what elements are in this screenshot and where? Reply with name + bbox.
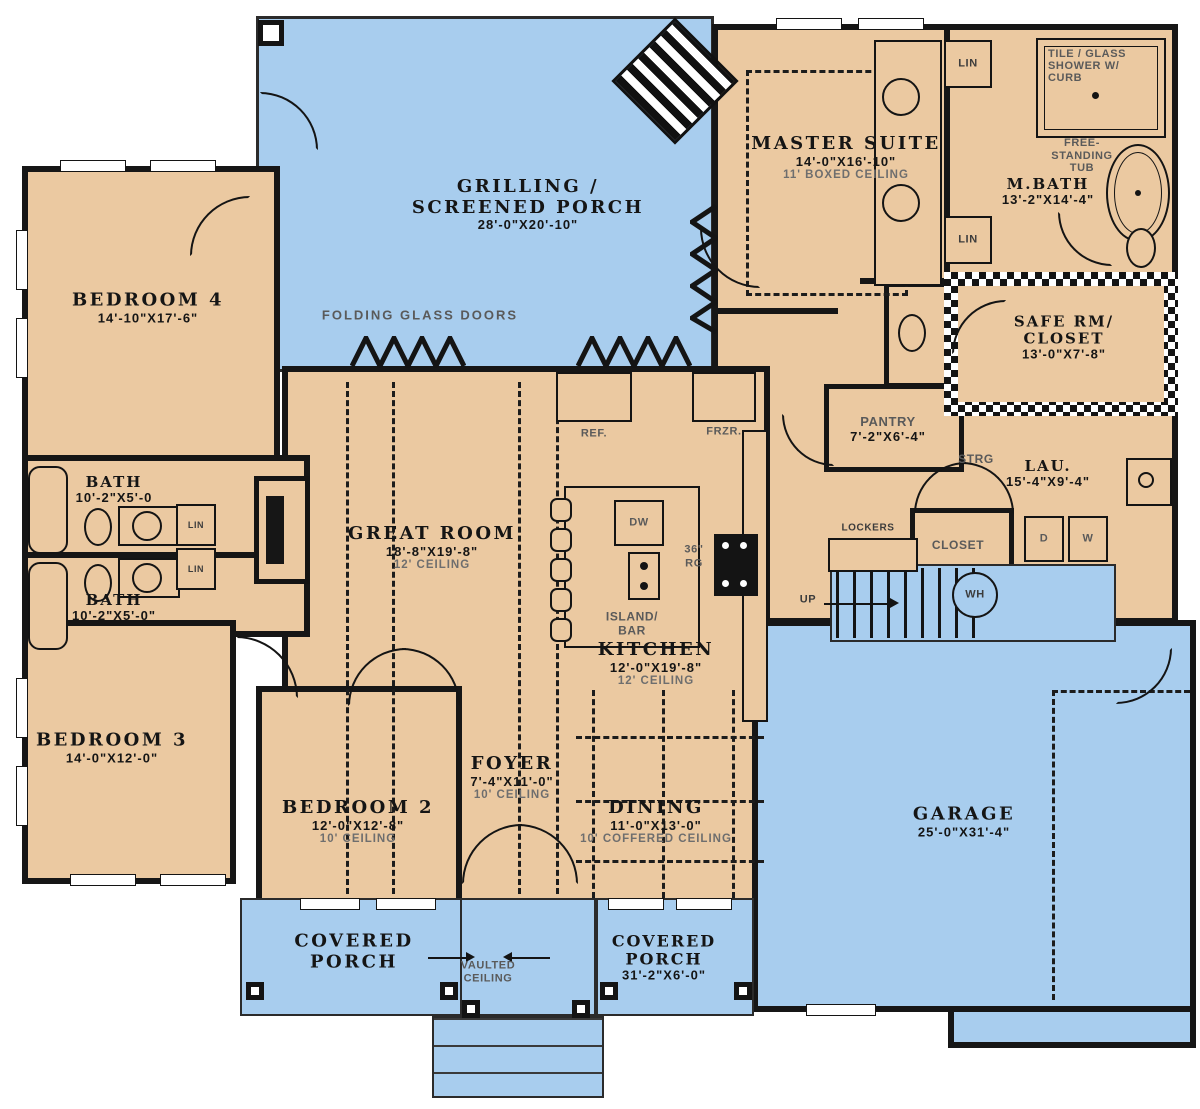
coffered-dash	[576, 860, 764, 863]
burner	[722, 542, 729, 549]
window	[858, 18, 924, 30]
stool-icon	[550, 498, 572, 522]
burner	[740, 580, 747, 587]
room-label-porch-right: COVERED PORCH 31'-2"X6'-0"	[612, 932, 716, 983]
freezer-icon	[692, 372, 756, 422]
ref-label: REF.	[581, 428, 607, 441]
garage-dashed-bay	[1052, 690, 1190, 1000]
shower-drain	[1092, 92, 1099, 99]
linen-label: LIN	[958, 58, 978, 71]
room-label-bedroom4: BEDROOM 4 14'-10"X17'-6"	[72, 290, 224, 325]
folding-door-icon	[350, 336, 466, 368]
strg-label: STRG	[958, 453, 994, 467]
up-arrow-line	[824, 603, 890, 605]
range-size-label: 36"	[684, 544, 703, 557]
island-sink-icon	[628, 552, 660, 600]
sink-icon	[132, 511, 162, 541]
bathtub-icon	[28, 562, 68, 650]
wall-segment	[712, 308, 838, 314]
toilet-icon	[84, 508, 112, 546]
porch-post	[258, 20, 284, 46]
vault-arrow-line	[512, 957, 550, 959]
room-label-foyer: FOYER 7'-4"X11'-0" 10' CEILING	[470, 754, 553, 802]
room-label-garage: GARAGE 25'-0"X31'-4"	[913, 804, 1015, 839]
sink-icon	[882, 184, 920, 222]
coffered-dash	[732, 690, 735, 898]
window	[16, 318, 28, 378]
stool-icon	[550, 588, 572, 612]
dryer-label: D	[1040, 533, 1049, 546]
room-label-kitchen: KITCHEN 12'-0"X19'-8" 12' CEILING	[598, 640, 714, 688]
stool-icon	[550, 618, 572, 642]
bathtub-icon	[28, 466, 68, 554]
window	[16, 766, 28, 826]
porch-post	[462, 1000, 480, 1018]
shower-label: TILE / GLASS SHOWER W/ CURB	[1048, 48, 1126, 84]
window	[608, 898, 664, 910]
folding-door-icon	[690, 204, 718, 334]
tub-drain	[1135, 190, 1141, 196]
washer-label: W	[1083, 533, 1094, 546]
porch-post	[600, 982, 618, 1000]
window	[16, 230, 28, 290]
porch-post	[734, 982, 752, 1000]
linen-label: LIN	[188, 564, 204, 574]
coffered-dash	[592, 690, 595, 898]
floor-plan: WH UP LIN LIN REF. FRZR.	[0, 0, 1200, 1109]
room-label-safe-room: SAFE RM/ CLOSET 13'-0"X7'-8"	[1014, 314, 1114, 363]
window	[300, 898, 360, 910]
window	[160, 874, 226, 886]
sink-drain	[1138, 472, 1154, 488]
sink-icon	[132, 563, 162, 593]
sink-drain	[640, 562, 648, 570]
range-icon	[714, 534, 758, 596]
room-label-great-room: GREAT ROOM 18'-8"X19'-8" 12' CEILING	[348, 524, 516, 572]
room-label-pantry: PANTRY 7'-2"X6'-4"	[850, 415, 926, 445]
sink-icon	[882, 78, 920, 116]
room-label-bath-lower: BATH 10'-2"X5'-0"	[72, 592, 156, 624]
frzr-label: FRZR.	[706, 426, 741, 439]
coffered-dash	[662, 690, 665, 898]
room-label-mbath: M.BATH 13'-2"X14'-4"	[1002, 176, 1094, 208]
window	[70, 874, 136, 886]
vaulted-ceiling-label: VAULTED CEILING	[461, 959, 516, 984]
room-label-bedroom3: BEDROOM 3 14'-0"X12'-0"	[36, 730, 188, 765]
room-label-bath-upper: BATH 10'-2"X5'-0	[76, 474, 153, 506]
folding-door-icon	[576, 336, 692, 368]
window	[376, 898, 436, 910]
burner	[722, 580, 729, 587]
room-label-master-suite: MASTER SUITE 14'-0"X16'-10" 11' BOXED CE…	[751, 134, 940, 182]
window	[150, 160, 216, 172]
porch-post	[246, 982, 264, 1000]
sink-drain	[640, 582, 648, 590]
tub-label: FREE- STANDING TUB	[1051, 137, 1112, 175]
up-label: UP	[800, 594, 816, 607]
room-label-laundry: LAU. 15'-4"X9'-4"	[1006, 458, 1090, 490]
dw-label: DW	[629, 517, 649, 530]
room-label-screened-porch: GRILLING / SCREENED PORCH 28'-0"X20'-10"	[412, 177, 644, 233]
stool-icon	[550, 528, 572, 552]
fireplace-firebox	[266, 496, 284, 564]
room-label-porch-left: COVERED PORCH	[294, 931, 413, 972]
toilet-icon	[1126, 228, 1156, 268]
window	[776, 18, 842, 30]
entry-steps	[432, 1016, 604, 1098]
toilet-icon	[898, 314, 926, 352]
coffered-dash	[576, 736, 764, 739]
porch-post	[440, 982, 458, 1000]
lockers-bench	[828, 538, 918, 572]
island-label: ISLAND/ BAR	[606, 610, 658, 637]
porch-post	[572, 1000, 590, 1018]
linen-label: LIN	[188, 520, 204, 530]
window	[60, 160, 126, 172]
stool-icon	[550, 558, 572, 582]
room-label-bedroom2: BEDROOM 2 12'-0"X12'-8" 10' CEILING	[282, 798, 434, 846]
refrigerator-icon	[556, 372, 632, 422]
ceiling-beam-dash	[518, 382, 521, 894]
up-arrow-icon	[890, 598, 899, 608]
window	[806, 1004, 876, 1016]
window	[16, 678, 28, 738]
linen-label: LIN	[958, 234, 978, 247]
burner	[740, 542, 747, 549]
closet-label: CLOSET	[932, 539, 984, 553]
range-label: RG	[685, 558, 703, 571]
window	[676, 898, 732, 910]
garage-stoop-area	[948, 1006, 1196, 1048]
room-label-dining: DINING 11'-0"X13'-0" 10' COFFERED CEILIN…	[580, 798, 732, 846]
water-heater-label: WH	[965, 589, 985, 602]
folding-doors-label: FOLDING GLASS DOORS	[322, 309, 518, 324]
lockers-label: LOCKERS	[841, 522, 894, 533]
